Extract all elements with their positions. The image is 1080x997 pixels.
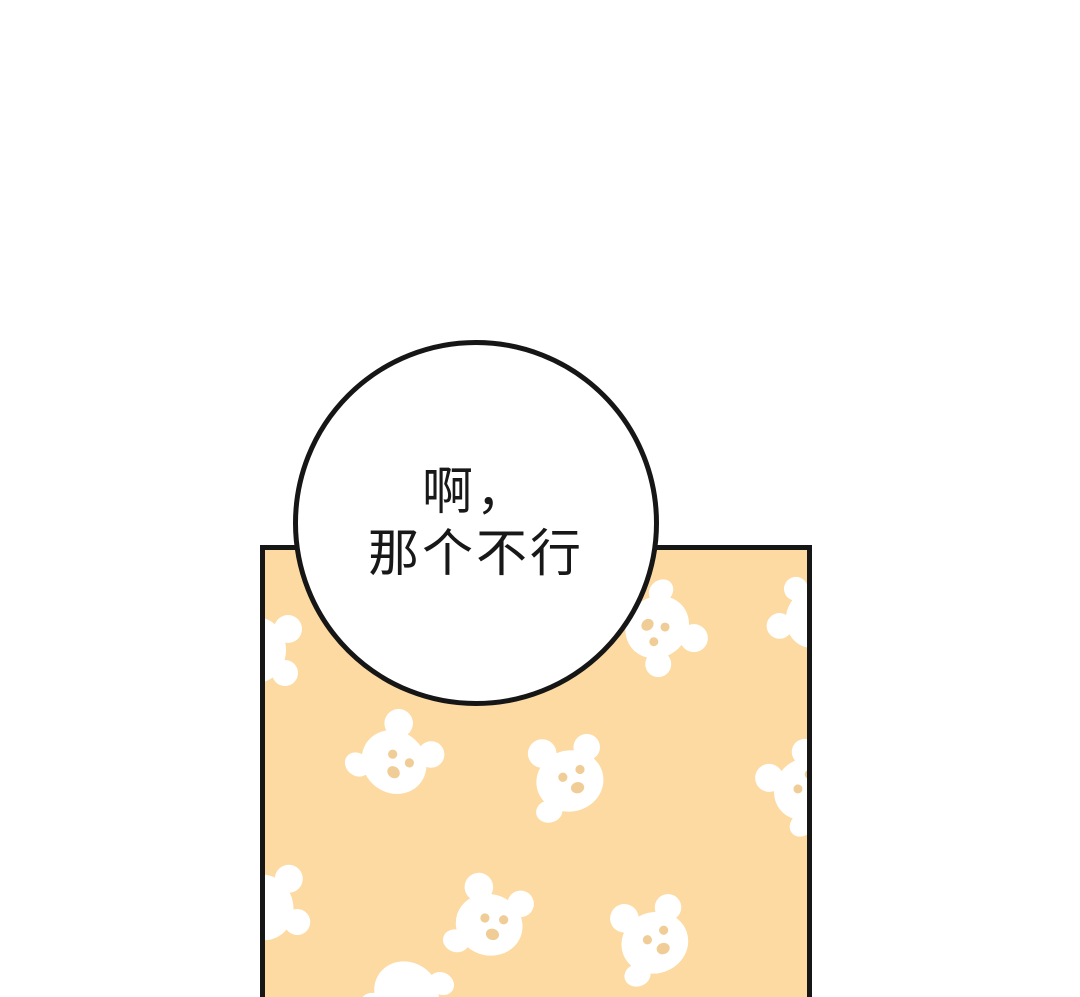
speech-bubble-line-2: 那个不行 bbox=[368, 523, 584, 585]
teddy-bear-icon bbox=[428, 852, 557, 981]
teddy-bear-icon bbox=[730, 712, 812, 853]
teddy-bear-icon bbox=[747, 556, 812, 674]
teddy-bear-icon bbox=[328, 683, 472, 827]
speech-bubble-line-1: 啊， bbox=[422, 461, 530, 523]
comic-page: 啊， 那个不行 bbox=[0, 0, 1080, 997]
teddy-bear-icon bbox=[260, 844, 333, 966]
speech-bubble: 啊， 那个不行 bbox=[293, 340, 659, 706]
teddy-bear-icon bbox=[588, 870, 717, 997]
teddy-bear-icon bbox=[260, 600, 315, 700]
teddy-bear-icon bbox=[508, 712, 629, 833]
